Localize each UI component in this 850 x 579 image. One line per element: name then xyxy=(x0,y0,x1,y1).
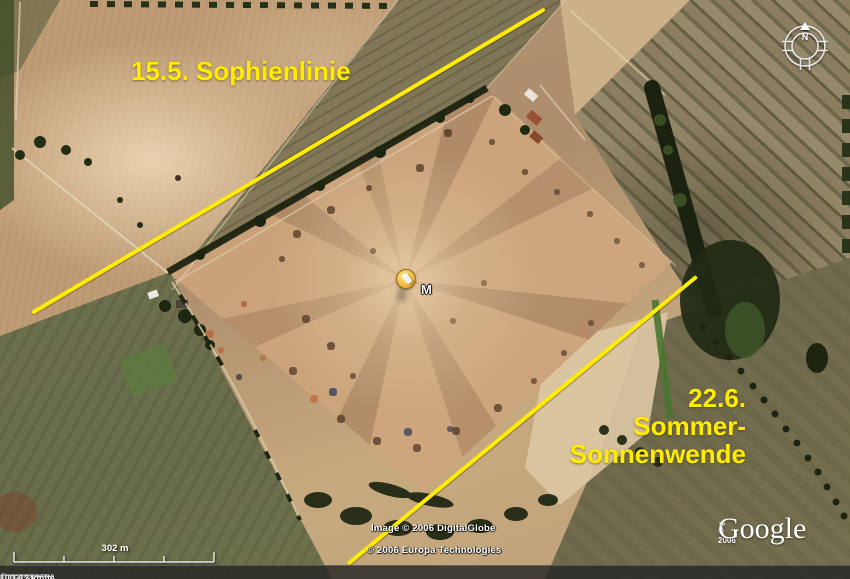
compass-icon[interactable]: N xyxy=(781,21,829,73)
solstice-label-date: 22.6. xyxy=(570,384,746,412)
credit-digitalglobe: Image © 2006 DigitalGlobe xyxy=(371,523,495,534)
placemark-label: M xyxy=(421,282,432,297)
placemark-icon[interactable] xyxy=(396,269,416,289)
pushpin-icon xyxy=(401,272,413,284)
sophienlinie-label: 15.5. Sophienlinie xyxy=(131,57,351,85)
google-logo: Google xyxy=(718,514,806,544)
google-earth-window: 15.5. Sophienlinie 22.6. Sommer- Sonnenw… xyxy=(0,0,850,579)
solstice-label-word1: Sommer- xyxy=(570,412,746,440)
status-bar: Zeiger 51°06'25.38" N 1°39'37.05" W Höhe… xyxy=(0,565,850,579)
eye-altitude-value: 1,13 km xyxy=(12,573,44,579)
solstice-label-word2: Sonnenwende xyxy=(570,440,746,468)
scale-bar-label: 302 m xyxy=(102,543,129,554)
solstice-label: 22.6. Sommer- Sonnenwende xyxy=(570,384,746,468)
google-trademark: ™ xyxy=(718,521,726,530)
satellite-map[interactable]: 15.5. Sophienlinie 22.6. Sommer- Sonnenw… xyxy=(0,0,850,579)
compass-north-label: N xyxy=(802,32,809,42)
placemark-shadow xyxy=(397,288,407,302)
scale-bar: 302 m xyxy=(8,540,224,566)
credit-europa: © 2006 Europa Technologies xyxy=(367,545,502,556)
